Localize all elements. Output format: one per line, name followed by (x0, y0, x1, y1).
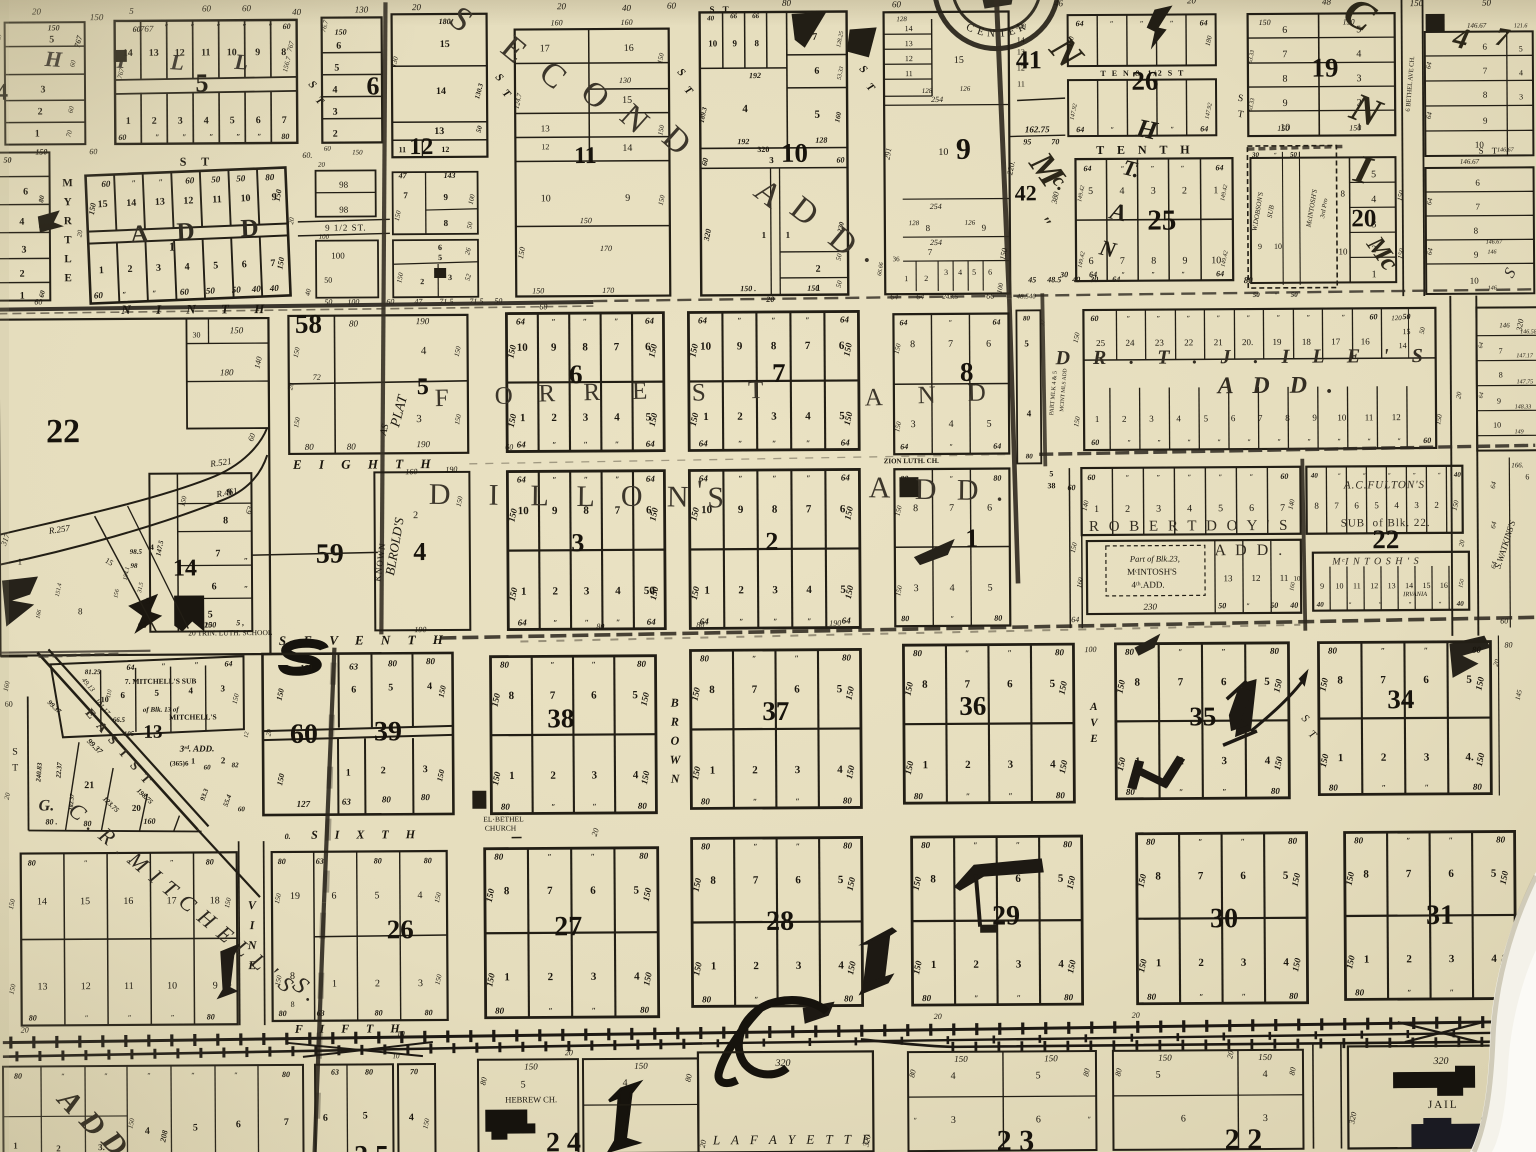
svg-text:1: 1 (904, 274, 908, 283)
svg-text:2: 2 (381, 765, 386, 776)
svg-text:14: 14 (622, 143, 632, 154)
svg-text:3: 3 (1263, 1113, 1268, 1124)
svg-text:″: ″ (805, 316, 809, 325)
svg-text:N: N (917, 382, 936, 409)
svg-text:80: 80 (1056, 790, 1066, 800)
svg-text:5: 5 (1374, 500, 1379, 510)
svg-text:80: 80 (700, 653, 710, 663)
svg-text:6: 6 (795, 874, 801, 886)
svg-text:″: ″ (949, 475, 953, 483)
svg-text:″: ″ (548, 1006, 552, 1015)
svg-text:Part of Blk.23,: Part of Blk.23, (1129, 553, 1180, 563)
svg-text:8: 8 (926, 223, 931, 233)
svg-text:3: 3 (772, 584, 778, 596)
svg-text:″: ″ (1388, 473, 1391, 479)
svg-text:3: 3 (423, 764, 428, 775)
svg-text:″: ″ (771, 316, 775, 325)
svg-text:2: 2 (221, 755, 226, 765)
svg-text:MITCHELL'S: MITCHELL'S (169, 712, 217, 721)
svg-text:9: 9 (1320, 582, 1324, 591)
svg-text:190: 190 (829, 619, 841, 628)
svg-text:2: 2 (965, 759, 971, 771)
svg-text:64: 64 (1215, 163, 1223, 172)
svg-text:64: 64 (224, 659, 232, 668)
svg-text:F: F (435, 385, 450, 412)
svg-text:R: R (538, 380, 556, 407)
svg-text:64: 64 (841, 472, 851, 482)
svg-text:4: 4 (806, 584, 812, 596)
svg-text:150 .: 150 . (740, 284, 756, 293)
svg-text:5: 5 (208, 609, 213, 620)
svg-text:60: 60 (1087, 473, 1095, 482)
svg-text:60: 60 (1423, 436, 1431, 445)
svg-text:O: O (621, 480, 643, 513)
svg-text:50: 50 (1482, 0, 1492, 8)
svg-text:″: ″ (1275, 293, 1278, 299)
svg-text:″: ″ (1307, 438, 1311, 446)
svg-text:80: 80 (637, 659, 647, 669)
svg-text:″: ″ (1379, 602, 1382, 608)
svg-text:D: D (967, 380, 986, 407)
svg-text:2: 2 (1182, 185, 1187, 196)
svg-text:10: 10 (1274, 242, 1282, 251)
svg-text:64: 64 (517, 474, 527, 484)
svg-text:146.58: 146.58 (1520, 328, 1536, 335)
svg-text:12: 12 (1017, 63, 1025, 72)
svg-text:″: ″ (1110, 20, 1114, 28)
svg-text:8: 8 (1282, 74, 1287, 85)
svg-text:9: 9 (1483, 116, 1488, 126)
svg-text:8: 8 (1337, 675, 1343, 687)
svg-text:60: 60 (1091, 438, 1099, 447)
svg-text:2: 2 (552, 586, 558, 598)
svg-text:126: 126 (965, 219, 976, 227)
svg-text:64: 64 (1216, 269, 1224, 278)
svg-text:1: 1 (191, 757, 195, 766)
svg-text:': ' (697, 474, 703, 507)
svg-text:R: R (670, 715, 679, 729)
svg-text:″: ″ (592, 802, 596, 811)
svg-text:98.5: 98.5 (130, 548, 143, 556)
svg-text:6: 6 (120, 690, 125, 700)
svg-text:9: 9 (551, 342, 557, 354)
svg-text:7: 7 (948, 339, 953, 350)
svg-text:3: 3 (1424, 752, 1430, 764)
svg-text:″: ″ (1016, 840, 1020, 849)
svg-text:.: . (996, 475, 1004, 508)
svg-text:80: 80 (842, 652, 852, 662)
svg-text:80: 80 (421, 792, 431, 802)
svg-text:″: ″ (806, 439, 810, 448)
svg-text:80: 80 (1271, 786, 1281, 796)
svg-text:64: 64 (842, 615, 852, 625)
svg-text:″: ″ (552, 440, 556, 449)
svg-text:″: ″ (965, 649, 969, 658)
svg-text:3: 3 (1241, 957, 1247, 969)
svg-text:80: 80 (901, 614, 909, 623)
svg-text:13: 13 (1223, 573, 1233, 583)
svg-text:″: ″ (1242, 992, 1246, 1001)
svg-text:10: 10 (517, 342, 529, 354)
svg-text:80: 80 (349, 318, 359, 328)
svg-text:121.6: 121.6 (1514, 23, 1528, 29)
svg-text:7. MITCHELL'S SUB: 7. MITCHELL'S SUB (125, 676, 197, 685)
svg-text:″: ″ (592, 1006, 596, 1015)
svg-text:7: 7 (1334, 501, 1339, 511)
svg-text:40: 40 (1310, 472, 1319, 480)
svg-text:″: ″ (806, 474, 810, 483)
svg-text:7: 7 (1380, 674, 1386, 686)
svg-text:6: 6 (351, 685, 356, 696)
svg-text:6: 6 (591, 689, 597, 701)
svg-text:″: ″ (1198, 837, 1202, 846)
svg-text:4: 4 (805, 410, 811, 422)
svg-text:6: 6 (988, 268, 992, 277)
svg-text:64: 64 (1071, 615, 1079, 624)
svg-text:″: ″ (1157, 439, 1161, 447)
svg-text:148.33: 148.33 (1515, 403, 1532, 410)
svg-text:20: 20 (1132, 1011, 1140, 1020)
svg-text:80: 80 (701, 796, 711, 806)
svg-text:5: 5 (988, 583, 993, 594)
svg-text:80: 80 (424, 856, 432, 865)
svg-text:17: 17 (540, 43, 550, 54)
svg-text:12: 12 (905, 54, 913, 63)
svg-text:″: ″ (1249, 473, 1253, 481)
svg-text:″: ″ (1381, 646, 1385, 655)
svg-text:″: ″ (1170, 20, 1174, 28)
svg-text:13: 13 (434, 126, 444, 137)
svg-text:4: 4 (615, 585, 621, 597)
svg-text:95: 95 (1023, 137, 1031, 146)
svg-text:12: 12 (441, 145, 449, 154)
svg-text:2: 2 (551, 412, 557, 424)
svg-text:1: 1 (346, 768, 351, 779)
svg-text:80: 80 (844, 993, 854, 1003)
svg-text:80: 80 (914, 791, 924, 801)
svg-text:5: 5 (1156, 1070, 1161, 1081)
svg-text:12: 12 (1251, 573, 1260, 583)
svg-text:6: 6 (986, 339, 991, 350)
svg-text:10: 10 (1211, 255, 1221, 266)
svg-text:36: 36 (893, 255, 901, 263)
svg-text:64: 64 (699, 438, 709, 448)
svg-text:″: ″ (772, 439, 776, 448)
svg-text:4: 4 (837, 764, 843, 776)
svg-text:9: 9 (1497, 397, 1501, 406)
svg-text:64: 64 (992, 318, 1000, 327)
svg-text:64: 64 (899, 318, 907, 327)
svg-text:7: 7 (806, 503, 812, 515)
svg-text:10: 10 (1335, 581, 1343, 590)
svg-text:″: ″ (1125, 474, 1129, 482)
svg-text:4: 4 (633, 769, 639, 781)
svg-text:60: 60 (539, 302, 547, 311)
svg-text:7: 7 (753, 874, 759, 886)
svg-text:7: 7 (928, 247, 933, 257)
svg-text:4: 4 (1356, 49, 1361, 60)
svg-text:26: 26 (1131, 66, 1158, 96)
svg-text:A: A (864, 384, 883, 411)
svg-text:6: 6 (1007, 678, 1013, 690)
svg-text:″: ″ (547, 852, 551, 861)
svg-text:8: 8 (1314, 501, 1319, 511)
svg-text:8: 8 (910, 339, 915, 350)
svg-text:2: 2 (1406, 953, 1412, 965)
svg-text:4: 4 (1265, 755, 1271, 767)
svg-text:4ᵗʰ.ADD.: 4ᵗʰ.ADD. (1131, 580, 1164, 590)
svg-text:O: O (494, 382, 513, 409)
svg-text:3: 3 (771, 411, 777, 423)
svg-text:A: A (869, 471, 891, 504)
svg-text:3: 3 (583, 412, 589, 424)
svg-text:63: 63 (349, 662, 359, 672)
svg-text:″: ″ (738, 474, 742, 483)
svg-text:″: ″ (1439, 602, 1442, 608)
svg-text:5: 5 (1050, 678, 1056, 690)
svg-text:20: 20 (204, 620, 212, 629)
svg-text:1: 1 (1338, 752, 1344, 764)
svg-text:39: 39 (374, 716, 402, 747)
svg-text:320: 320 (1432, 1056, 1448, 1067)
svg-text:″: ″ (1450, 988, 1454, 997)
svg-text:80: 80 (495, 1006, 505, 1016)
svg-text:320: 320 (757, 145, 769, 154)
svg-text:58: 58 (295, 309, 322, 339)
svg-text:6: 6 (1525, 472, 1529, 481)
svg-text:″: ″ (1246, 602, 1250, 610)
svg-text:80: 80 (388, 658, 398, 668)
svg-text:36: 36 (959, 691, 986, 721)
svg-text:2: 2 (413, 510, 418, 521)
svg-text:L: L (576, 480, 595, 513)
svg-text:1: 1 (1213, 185, 1218, 196)
svg-text:4: 4 (1263, 1069, 1268, 1080)
svg-text:4: 4 (1058, 958, 1064, 970)
svg-text:4: 4 (1176, 413, 1181, 423)
svg-text:9: 9 (1474, 250, 1479, 260)
svg-text:80: 80 (347, 442, 357, 452)
svg-text:40: 40 (1456, 600, 1465, 608)
svg-text:8: 8 (1499, 371, 1503, 380)
svg-text:3: 3 (911, 419, 916, 430)
svg-text:180: 180 (220, 367, 234, 377)
svg-text:20: 20 (1351, 205, 1376, 232)
svg-text:″: ″ (1367, 437, 1371, 445)
svg-text:7: 7 (1280, 503, 1285, 514)
svg-text:9: 9 (227, 487, 232, 498)
svg-text:10: 10 (781, 138, 808, 168)
svg-text:14: 14 (436, 86, 446, 97)
svg-text:R O B E R T D O Y ' S: R O B E R T D O Y ' S (1089, 518, 1291, 535)
svg-text:″: ″ (583, 317, 587, 326)
svg-text:2 2: 2 2 (1225, 1123, 1263, 1152)
svg-text:64: 64 (646, 439, 656, 449)
svg-text:2: 2 (738, 584, 744, 596)
svg-text:10: 10 (1338, 246, 1348, 256)
svg-text:4: 4 (1394, 500, 1399, 510)
svg-text:″: ″ (1338, 473, 1341, 479)
svg-text:L A F A Y E T T E: L A F A Y E T T E (712, 1131, 874, 1147)
svg-text:″: ″ (1110, 126, 1114, 134)
svg-text:″: ″ (795, 654, 799, 663)
svg-text:3: 3 (1156, 504, 1161, 515)
svg-text:3: 3 (796, 960, 802, 972)
svg-text:2 3: 2 3 (997, 1124, 1035, 1152)
svg-text:13: 13 (1388, 581, 1396, 590)
svg-text:I: I (488, 479, 498, 512)
svg-text:1: 1 (1095, 414, 1100, 424)
svg-text:6: 6 (212, 581, 217, 592)
svg-text:1: 1 (520, 412, 526, 424)
svg-text:7: 7 (614, 341, 620, 353)
svg-text:″: ″ (550, 660, 554, 669)
svg-text:40: 40 (622, 3, 632, 13)
svg-text:2 4: 2 4 (546, 1127, 581, 1152)
svg-text:″: ″ (591, 660, 595, 669)
svg-text:8: 8 (582, 341, 588, 353)
svg-text:″: ″ (949, 443, 953, 451)
svg-text:5: 5 (1204, 413, 1209, 423)
svg-text:68: 68 (138, 620, 148, 630)
svg-text:15: 15 (1422, 581, 1430, 590)
svg-text:3: 3 (951, 1115, 956, 1126)
svg-text:80: 80 (425, 1008, 433, 1017)
svg-text:″: ″ (753, 842, 757, 851)
svg-text:192: 192 (737, 137, 749, 146)
svg-text:″: ″ (1187, 473, 1191, 481)
svg-text:80: 80 (501, 802, 511, 812)
svg-text:160: 160 (551, 18, 563, 27)
svg-text:4: 4 (838, 960, 844, 972)
svg-text:5: 5 (1491, 868, 1497, 880)
svg-text:4: 4 (949, 419, 954, 430)
svg-text:4.: 4. (1465, 751, 1474, 763)
svg-text:″: ″ (752, 654, 756, 663)
svg-text:64: 64 (518, 617, 528, 627)
svg-text:80: 80 (1329, 783, 1339, 793)
svg-text:81.25: 81.25 (85, 668, 101, 676)
svg-text:160: 160 (143, 817, 155, 826)
svg-text:″: ″ (614, 317, 618, 326)
svg-text:N I N T H: N I N T H (120, 301, 275, 317)
svg-text:7: 7 (1475, 202, 1480, 212)
svg-text:″: ″ (1438, 473, 1441, 479)
svg-text:″: ″ (1121, 271, 1125, 279)
svg-text:254: 254 (930, 238, 942, 247)
svg-text:80: 80 (782, 0, 792, 8)
svg-text:190: 190 (416, 316, 430, 326)
svg-text:″: ″ (1406, 836, 1410, 845)
svg-text:320: 320 (774, 1058, 790, 1069)
svg-text:150: 150 (1277, 124, 1289, 133)
svg-text:G.: G. (39, 797, 55, 814)
svg-text:″: ″ (615, 475, 619, 484)
svg-text:12: 12 (243, 731, 250, 738)
svg-text:7: 7 (805, 340, 811, 352)
svg-text:13: 13 (905, 39, 913, 48)
svg-text:6: 6 (1475, 178, 1480, 188)
svg-text:146: 146 (1488, 249, 1497, 256)
svg-text:4: 4 (417, 890, 422, 901)
svg-text:9: 9 (625, 193, 630, 204)
svg-text:D: D (957, 474, 979, 507)
svg-text:9: 9 (443, 192, 448, 202)
svg-text:″: ″ (591, 852, 595, 861)
svg-text:60: 60 (204, 763, 212, 771)
svg-text:11: 11 (1353, 581, 1361, 590)
svg-text:1: 1 (786, 230, 791, 240)
svg-text:8: 8 (930, 873, 936, 885)
svg-text:5: 5 (838, 874, 844, 886)
svg-text:″: ″ (1121, 165, 1125, 173)
svg-text:8: 8 (1151, 256, 1156, 267)
svg-text:64: 64 (1076, 125, 1084, 134)
svg-text:6: 6 (1354, 500, 1359, 510)
svg-text:3: 3 (1151, 186, 1156, 197)
svg-text:″: ″ (1425, 783, 1429, 792)
svg-text:5: 5 (632, 689, 638, 701)
svg-text:3: 3 (592, 770, 598, 782)
svg-text:149: 149 (1515, 428, 1524, 435)
svg-text:150: 150 (1259, 18, 1271, 27)
svg-text:″: ″ (966, 792, 970, 801)
svg-text:″: ″ (737, 316, 741, 325)
svg-text:64: 64 (698, 315, 708, 325)
svg-text:T: T (12, 763, 18, 774)
svg-text:8: 8 (771, 340, 777, 352)
svg-text:″: ″ (244, 584, 248, 593)
svg-text:48.540: 48.540 (1017, 292, 1037, 300)
svg-text:4: 4 (634, 971, 640, 983)
svg-text:10: 10 (1470, 276, 1480, 286)
svg-text:1: 1 (965, 524, 978, 553)
svg-text:3ʳᵈ. ADD.: 3ʳᵈ. ADD. (179, 743, 215, 753)
svg-text:5: 5 (1371, 169, 1376, 180)
svg-text:″: ″ (1008, 792, 1012, 801)
svg-text:7: 7 (1483, 66, 1488, 76)
svg-text:3: 3 (1221, 755, 1227, 767)
svg-text:″: ″ (973, 841, 977, 850)
svg-text:60: 60 (892, 0, 902, 9)
svg-text:5 ,: 5 , (236, 618, 244, 627)
svg-text:147.75: 147.75 (1517, 378, 1534, 385)
svg-text:″: ″ (1449, 836, 1453, 845)
svg-text:A.C.FULTON'S: A.C.FULTON'S (1343, 479, 1425, 492)
svg-text:150: 150 (634, 1061, 648, 1071)
svg-text:3: 3 (769, 155, 774, 165)
svg-text:S: S (707, 481, 724, 514)
svg-text:190: 190 (416, 439, 430, 449)
svg-text:11: 11 (1365, 412, 1374, 422)
svg-text:70: 70 (1051, 137, 1059, 146)
svg-text:6: 6 (1015, 873, 1021, 885)
svg-text:40: 40 (1453, 471, 1462, 479)
svg-text:190: 190 (414, 625, 426, 634)
svg-text:MᶜI N T O S H ' S: MᶜI N T O S H ' S (1331, 556, 1419, 568)
svg-text:9: 9 (1312, 413, 1317, 423)
svg-text:80: 80 (1496, 834, 1506, 844)
svg-text:E: E (632, 378, 648, 405)
svg-text:″: ″ (1127, 439, 1131, 447)
svg-text:6: 6 (590, 885, 596, 897)
svg-text:S: S (691, 379, 706, 406)
svg-text:20: 20 (132, 803, 142, 813)
svg-text:10: 10 (708, 38, 718, 48)
svg-text:8: 8 (1285, 413, 1290, 423)
svg-text:″: ″ (795, 797, 799, 806)
svg-text:26: 26 (387, 914, 414, 944)
